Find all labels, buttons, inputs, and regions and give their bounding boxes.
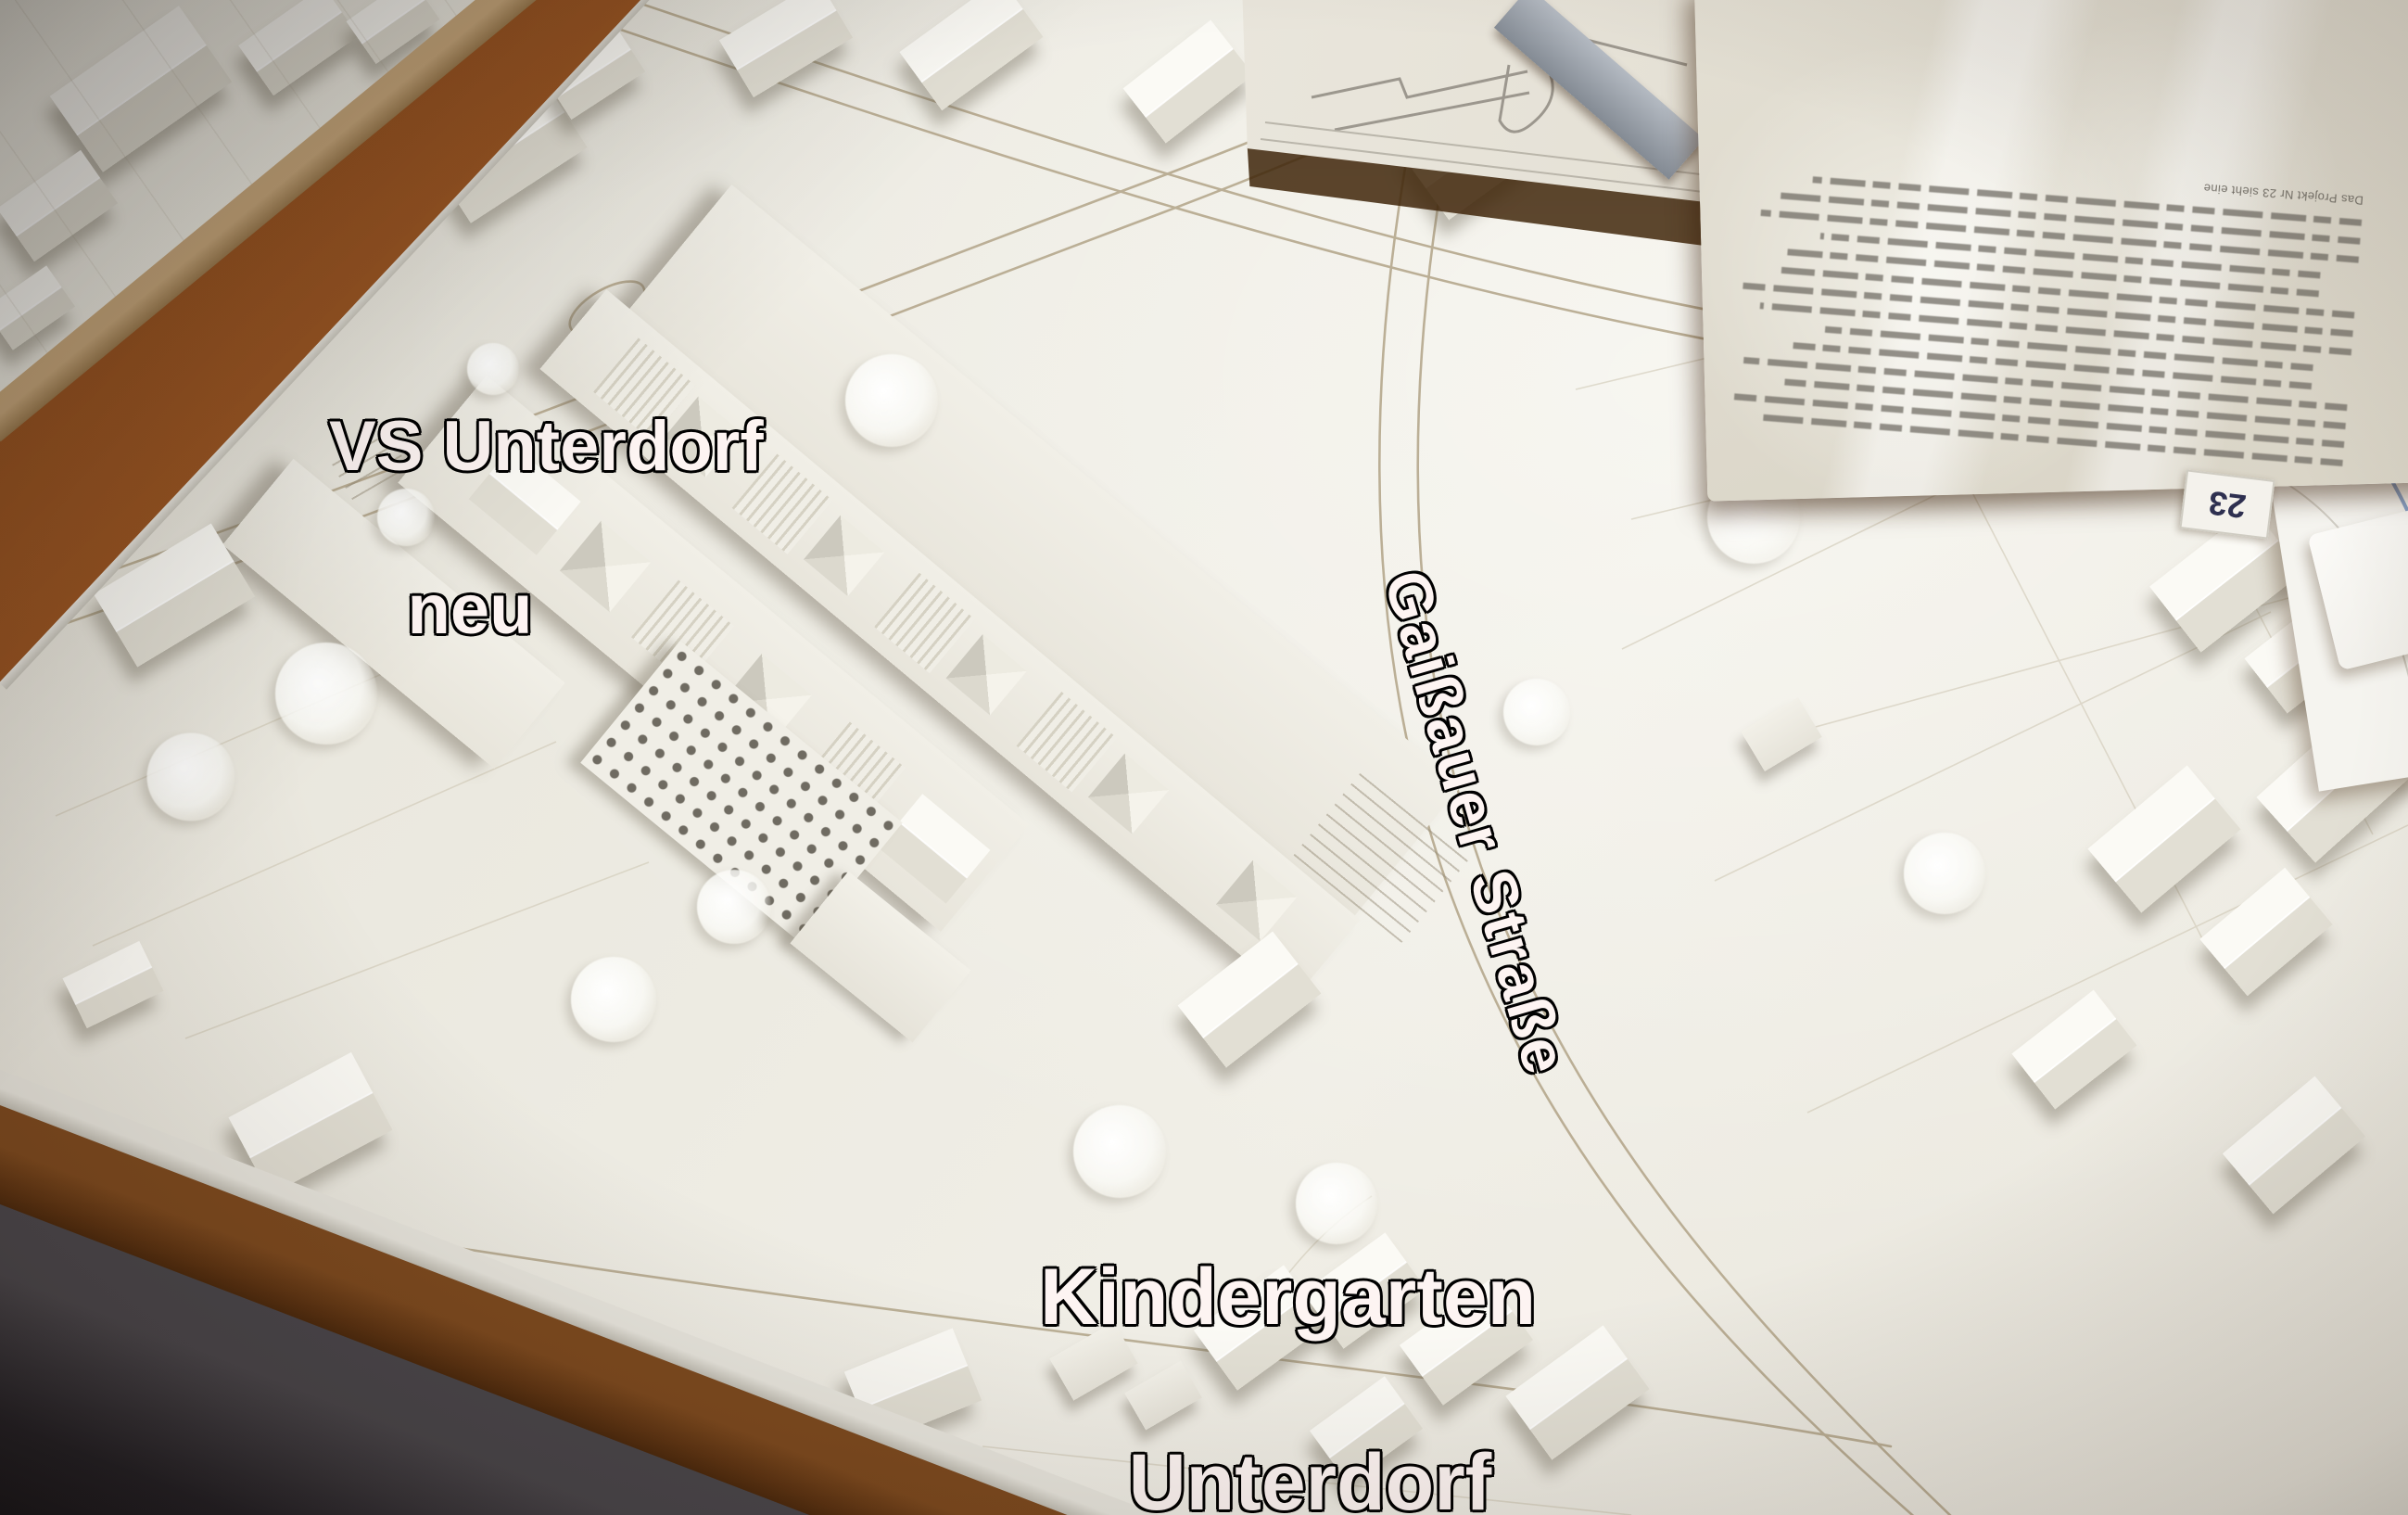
pyramid-skylight xyxy=(804,516,884,596)
model-tree xyxy=(697,870,771,944)
label-kindergarten-line2: Unterdorf xyxy=(1129,1438,1492,1515)
label-school-line2: neu xyxy=(407,570,532,649)
model-tree xyxy=(845,354,938,447)
roof-hatch xyxy=(1017,692,1118,792)
pavilion-gable xyxy=(878,794,990,903)
document-sleeve: Das Projekt Nr 23 sieht eine xyxy=(1694,0,2408,502)
pyramid-skylight xyxy=(945,634,1026,715)
pyramid-skylight xyxy=(1088,753,1169,834)
model-house xyxy=(0,265,75,350)
project-description-document: Das Projekt Nr 23 sieht eine xyxy=(1731,146,2364,478)
model-tree xyxy=(571,957,656,1042)
label-kindergarten-line1: Kindergarten xyxy=(1040,1253,1536,1342)
label-kindergarten: Kindergarten Unterdorf xyxy=(1040,1252,1536,1515)
pyramid-skylight xyxy=(1216,860,1297,941)
model-tree xyxy=(1503,679,1570,745)
project-number: 23 xyxy=(2207,483,2249,527)
model-house xyxy=(238,0,359,95)
model-tree xyxy=(1904,833,1985,914)
model-tree xyxy=(1073,1105,1166,1198)
label-school: VS Unterdorf neu xyxy=(329,406,764,651)
model-tree xyxy=(147,733,235,821)
model-tree xyxy=(1296,1163,1377,1244)
photo-architectural-model-scene: Das Projekt Nr 23 sieht eine 23 VS Unter… xyxy=(0,0,2408,1515)
project-number-tag: 23 xyxy=(2179,469,2275,539)
model-tree xyxy=(275,643,377,745)
model-tree xyxy=(467,343,519,395)
label-school-line1: VS Unterdorf xyxy=(329,407,764,486)
roof-hatch xyxy=(874,573,975,673)
model-house xyxy=(0,150,118,261)
model-house xyxy=(50,6,233,172)
